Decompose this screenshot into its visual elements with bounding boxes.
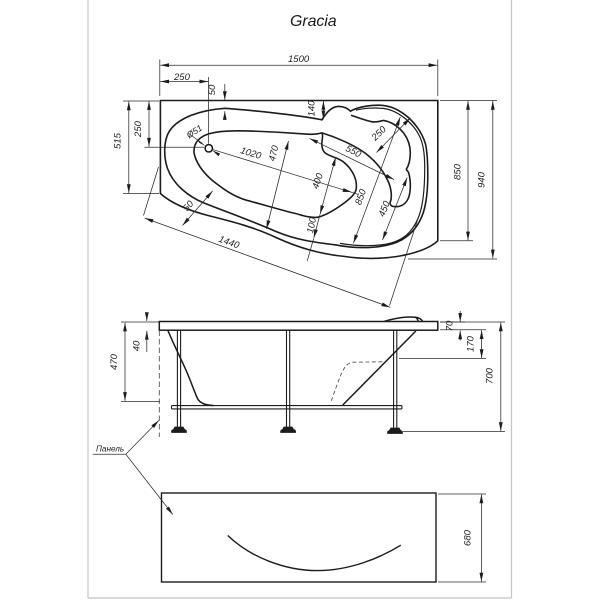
svg-text:550: 550: [344, 143, 364, 160]
svg-text:470: 470: [109, 353, 120, 370]
svg-text:400: 400: [310, 171, 326, 190]
svg-text:250: 250: [173, 72, 191, 83]
svg-text:940: 940: [477, 171, 488, 188]
svg-text:40: 40: [132, 340, 143, 351]
svg-text:140: 140: [307, 100, 318, 117]
svg-text:680: 680: [463, 529, 474, 546]
svg-text:700: 700: [485, 367, 496, 384]
svg-text:850: 850: [453, 163, 464, 180]
svg-text:Панель: Панель: [96, 445, 124, 454]
svg-text:50: 50: [207, 84, 218, 95]
svg-text:1020: 1020: [239, 145, 263, 162]
svg-text:250: 250: [133, 120, 144, 138]
svg-text:70: 70: [445, 320, 456, 331]
svg-text:100: 100: [305, 216, 319, 234]
svg-text:250: 250: [369, 124, 389, 144]
svg-text:1500: 1500: [288, 54, 310, 65]
svg-text:170: 170: [466, 335, 477, 352]
svg-text:515: 515: [113, 132, 124, 149]
svg-text:470: 470: [267, 144, 282, 163]
svg-text:Gracia: Gracia: [290, 13, 337, 30]
